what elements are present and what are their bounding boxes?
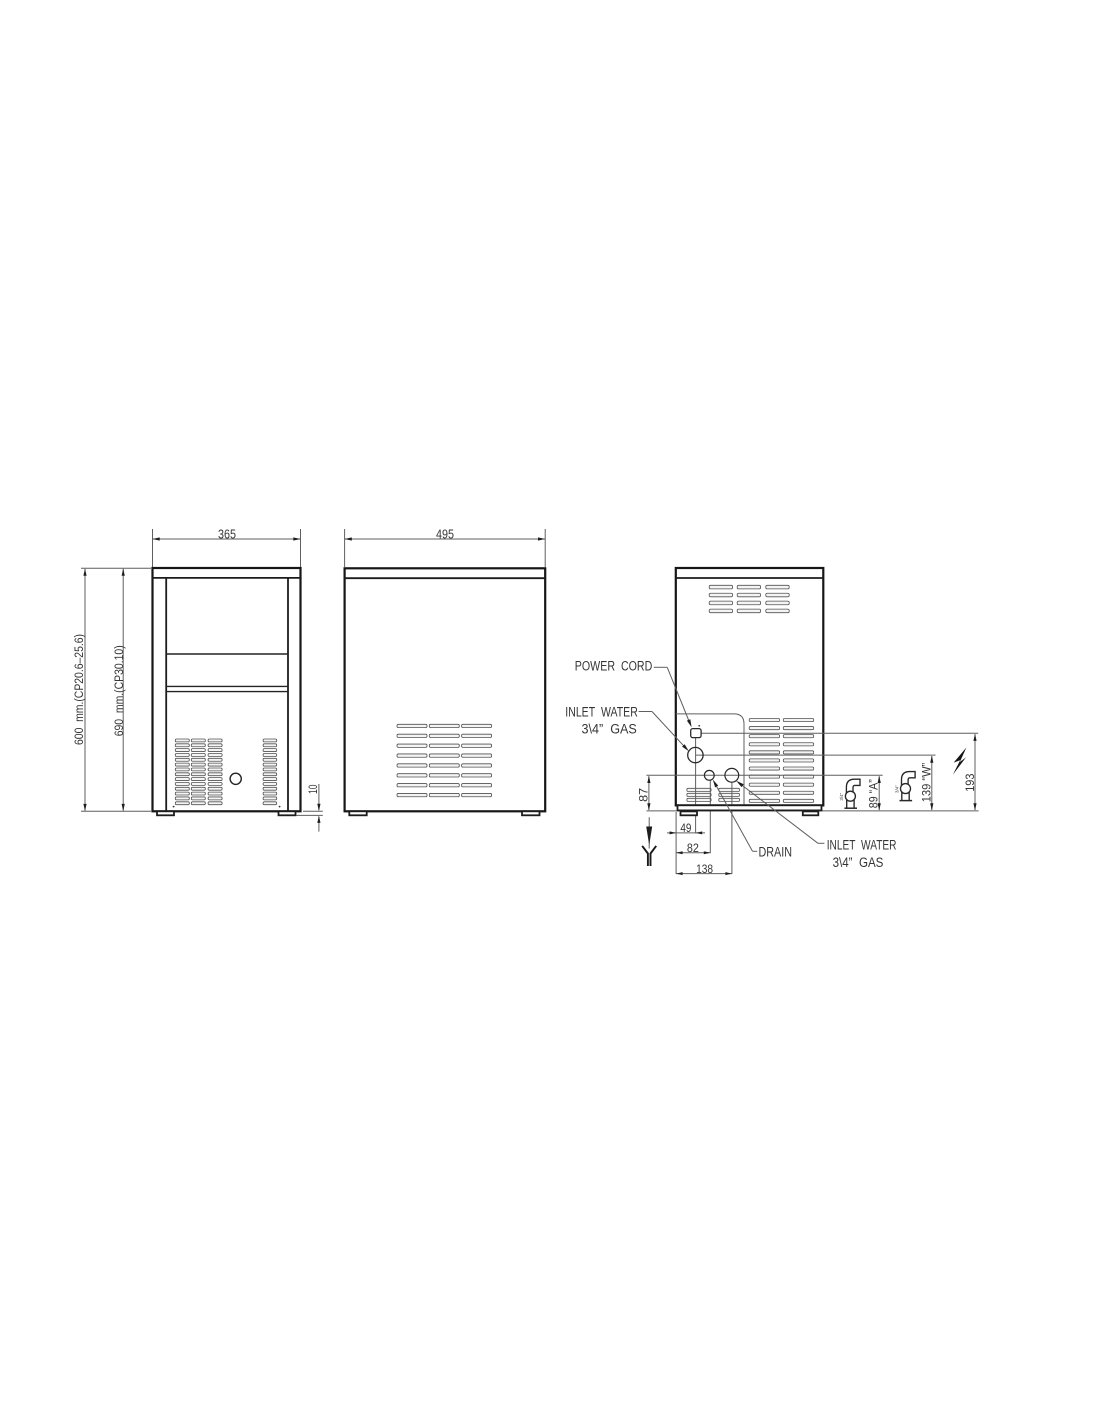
svg-text:INLET WATER: INLET WATER (827, 837, 897, 853)
svg-text:3\4” GAS: 3\4” GAS (833, 855, 884, 871)
svg-text:495: 495 (436, 528, 454, 542)
svg-text:87: 87 (637, 788, 651, 802)
svg-text:3\4” GAS: 3\4” GAS (582, 721, 637, 737)
svg-text:365: 365 (218, 528, 236, 542)
svg-text:139 “W”: 139 “W” (919, 763, 933, 803)
svg-text:690 mm.(CP30.10): 690 mm.(CP30.10) (112, 645, 126, 736)
svg-text:193: 193 (963, 773, 977, 791)
svg-text:10: 10 (306, 784, 320, 794)
svg-text:82: 82 (687, 841, 699, 855)
svg-text:POWER CORD: POWER CORD (575, 658, 653, 674)
svg-text:138: 138 (696, 862, 713, 876)
svg-text:INLET WATER: INLET WATER (565, 704, 638, 720)
svg-text:600 mm.(CP20.6–25.6): 600 mm.(CP20.6–25.6) (72, 634, 86, 745)
svg-text:DRAIN: DRAIN (759, 845, 793, 861)
svg-text:89 “A”: 89 “A” (867, 779, 881, 808)
svg-text:49: 49 (680, 821, 691, 835)
